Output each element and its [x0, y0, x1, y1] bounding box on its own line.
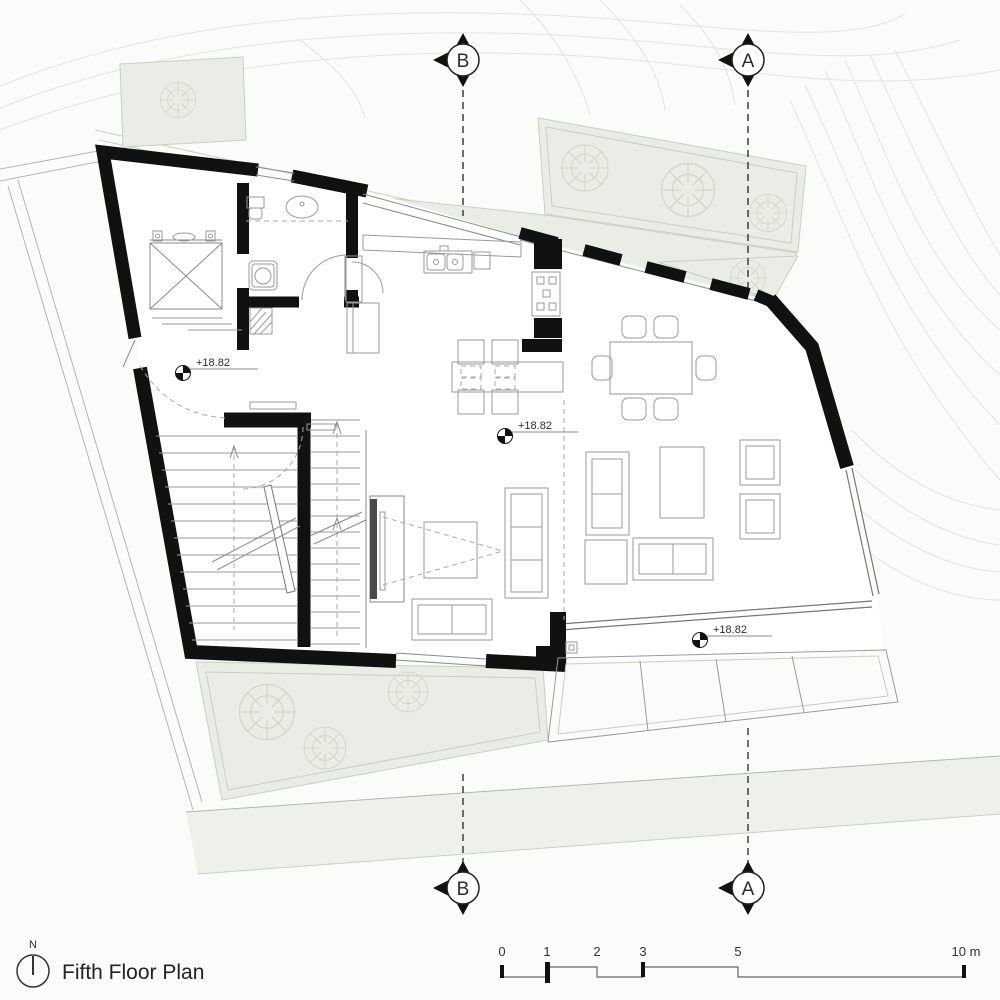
floor-plan-canvas: B A B A: [0, 0, 1000, 1000]
scale-tick-label: 3: [639, 944, 646, 959]
scale-tick-label: 1: [543, 944, 550, 959]
level-value: +18.82: [518, 420, 552, 432]
section-label: B: [457, 879, 470, 900]
scale-tick-label: 2: [593, 944, 600, 959]
north-label: N: [29, 939, 37, 951]
planter-top-left: [120, 57, 246, 147]
section-label: A: [742, 51, 755, 72]
scale-tick-label: 10 m: [952, 944, 981, 959]
section-label: A: [742, 879, 755, 900]
page-title: Fifth Floor Plan: [62, 961, 204, 984]
scale-tick-label: 0: [498, 944, 505, 959]
scale-tick-label: 5: [734, 944, 741, 959]
tv-icon: [370, 499, 377, 599]
section-label: B: [457, 51, 470, 72]
level-value: +18.82: [713, 624, 747, 636]
level-value: +18.82: [196, 357, 230, 369]
